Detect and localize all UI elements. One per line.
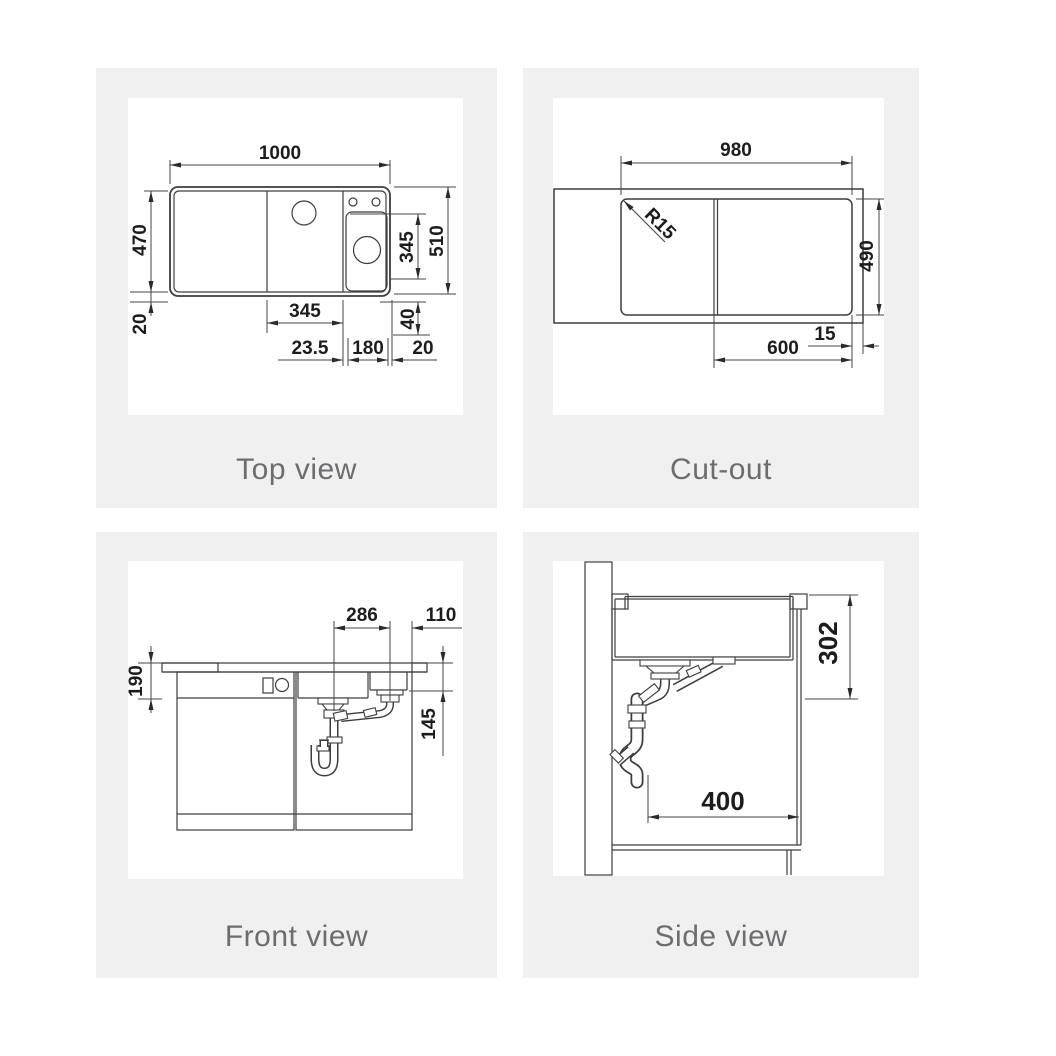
dim-inner-depth: 470: [130, 224, 151, 256]
dim-rim-bottom: 20: [130, 313, 151, 334]
dim-drain-offset: 110: [426, 605, 457, 626]
sink-outline: [170, 187, 390, 296]
dim-right-depth: 145: [419, 708, 440, 740]
small-bowl-drain-hole: [354, 237, 381, 264]
caption-cut-out: Cut-out: [523, 453, 919, 487]
strainer-flange: [640, 660, 690, 666]
dim-edge-offset: 15: [814, 324, 836, 345]
caption-side-view: Side view: [523, 920, 919, 954]
dim-gap: 23.5: [292, 338, 329, 359]
dim-main-bowl-width: 345: [289, 301, 321, 322]
side-view-svg: 302 400: [553, 561, 884, 876]
countertop-outline: [554, 189, 863, 323]
panel-top-view: 1000 470 20 345 23.5 180 20 345 40 510 T…: [96, 68, 497, 508]
main-strainer: [318, 698, 348, 704]
dim-corner-radius: R15: [640, 204, 680, 244]
radius-callout: R15: [624, 201, 680, 244]
dimension-labels: 980 490 15 600: [720, 140, 878, 359]
side-view-drawing: 302 400: [553, 561, 884, 876]
front-view-drawing: 286 110 190 145: [128, 561, 463, 879]
panel-front-view: 286 110 190 145 Front view: [96, 532, 497, 978]
dim-drain-spacing: 286: [346, 605, 378, 626]
dim-small-bowl-width: 180: [352, 338, 384, 359]
tap-hole: [349, 198, 357, 206]
drain-piping: [315, 690, 403, 772]
cut-out-svg: R15: [553, 98, 884, 415]
countertop: [162, 663, 427, 672]
main-bowl-drain-hole: [292, 201, 316, 225]
panel-side-view: 302 400 Side view: [523, 532, 919, 978]
base-cabinets: [177, 672, 412, 830]
dishwasher-control: [263, 678, 273, 693]
tap-hole: [372, 198, 380, 206]
wall: [585, 562, 612, 875]
top-view-svg: 1000 470 20 345 23.5 180 20 345 40 510: [128, 98, 463, 415]
dimension-lines: [621, 156, 884, 368]
dim-cabinet-depth: 400: [701, 786, 744, 816]
dim-cutout-width: 980: [720, 140, 752, 161]
dim-left-depth: 190: [128, 665, 147, 697]
dimension-labels: 1000 470 20 345 23.5 180 20 345 40 510: [130, 143, 448, 359]
top-view-drawing: 1000 470 20 345 23.5 180 20 345 40 510: [128, 98, 463, 415]
dimension-labels: 302 400: [701, 621, 843, 816]
dim-mounting-depth: 302: [813, 621, 843, 664]
dim-overall-depth: 510: [427, 225, 448, 257]
dim-overall-width: 1000: [259, 143, 301, 164]
dim-offset-40: 40: [398, 308, 419, 329]
cut-out-drawing: R15: [553, 98, 884, 415]
front-view-svg: 286 110 190 145: [128, 561, 463, 879]
bowl-section: [612, 597, 793, 661]
dim-bowl-section: 600: [767, 338, 799, 359]
dim-cutout-depth: 490: [857, 240, 878, 272]
caption-front-view: Front view: [96, 920, 497, 954]
dim-rim-right: 20: [412, 338, 433, 359]
dimension-lines: [138, 621, 462, 756]
dishwasher-knob: [276, 679, 289, 692]
panel-cut-out: R15: [523, 68, 919, 508]
dim-small-bowl-depth: 345: [397, 231, 418, 263]
caption-top-view: Top view: [96, 453, 497, 487]
drain-piping: [610, 657, 735, 782]
